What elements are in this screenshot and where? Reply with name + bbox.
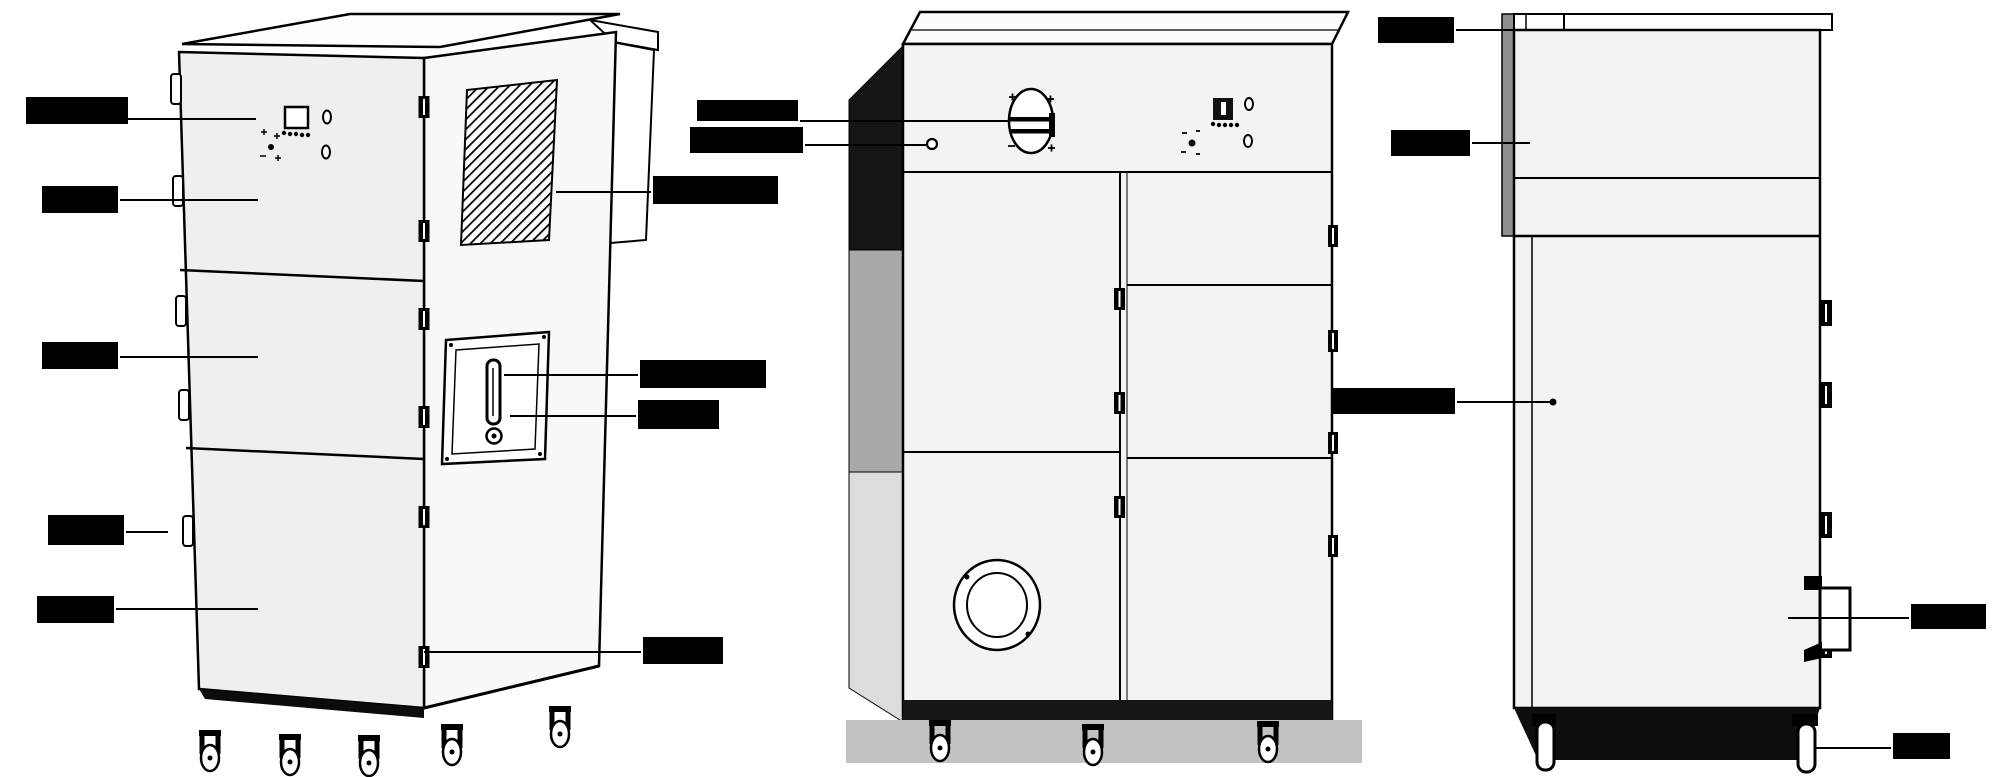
label-handle-lock: 把手锁	[638, 400, 719, 429]
label-cable-inlet: 进线口	[1911, 604, 1986, 629]
leader-line	[120, 356, 258, 358]
label-middle-cabinet: 中箱体	[42, 342, 118, 369]
leader-line	[510, 415, 636, 417]
label-caster: 脚轮	[1893, 733, 1950, 759]
leader-line	[1456, 29, 1540, 31]
button	[1244, 135, 1252, 147]
exhaust-grille	[461, 80, 557, 245]
leader-line	[805, 144, 926, 146]
pressure-test-hole	[927, 139, 937, 149]
caster-wheel	[279, 734, 301, 775]
caster-wheel	[199, 730, 221, 771]
cleaning-handle-box	[442, 332, 549, 464]
leader-line	[556, 191, 651, 193]
caster-wheel	[441, 724, 463, 765]
flanged-port	[954, 560, 1040, 650]
label-hv-test-port: 高压检测口	[1331, 388, 1455, 414]
label-door-hinge: 门铰链	[48, 515, 124, 545]
side-sliver-dark	[849, 46, 903, 250]
display-screen	[285, 107, 308, 128]
label-control-panel: 控制面板	[26, 97, 128, 124]
leader-line	[1457, 401, 1551, 403]
base-strip	[903, 700, 1332, 720]
view-front	[846, 12, 1362, 765]
caster-wheel	[1532, 714, 1556, 770]
leader-line	[800, 120, 1010, 122]
leader-line	[126, 531, 168, 533]
side-sliver-mid	[849, 250, 903, 472]
leader-line	[504, 374, 638, 376]
button	[322, 146, 330, 159]
button	[323, 111, 331, 124]
leader-line	[1788, 617, 1909, 619]
label-upper-cabinet: 上箱体	[42, 186, 118, 213]
leader-line	[116, 608, 258, 610]
leader-line	[128, 118, 256, 120]
leader-line	[1816, 747, 1891, 749]
label-pressure-test-port: 压差检测口	[690, 127, 803, 153]
label-ground-port: 接地口	[643, 637, 723, 664]
side-face	[1514, 30, 1820, 708]
leader-line	[120, 199, 258, 201]
label-cleaning-handle: 清灰机构手柄	[640, 360, 766, 388]
label-air-outlet-grille: 洁净排风口	[653, 176, 778, 204]
top-panel	[903, 12, 1348, 44]
button	[1245, 98, 1253, 110]
caster-wheel	[358, 735, 380, 776]
label-noise-duct: 降噪管	[1391, 130, 1470, 156]
caster-wheel	[549, 706, 571, 747]
diagram-canvas: 控制面板 上箱体 中箱体 门铰链 下箱体 洁净排风口 清灰机构手柄 把手锁 接地…	[0, 0, 2002, 777]
machine-drawings	[0, 0, 2002, 777]
label-damper-valve: 风量调节阀	[697, 100, 798, 121]
leader-line	[424, 651, 641, 653]
label-air-outlet: 出风口	[1378, 17, 1454, 43]
view-front-left	[171, 14, 658, 776]
leader-line	[1472, 142, 1530, 144]
noise-duct-channel	[1502, 14, 1514, 236]
view-side	[1502, 14, 1850, 772]
label-lower-cabinet: 下箱体	[37, 596, 114, 623]
front-face	[179, 52, 424, 708]
base-trapezoid	[1514, 708, 1820, 760]
damper-dial	[1008, 89, 1055, 153]
side-sliver-light	[849, 472, 903, 722]
